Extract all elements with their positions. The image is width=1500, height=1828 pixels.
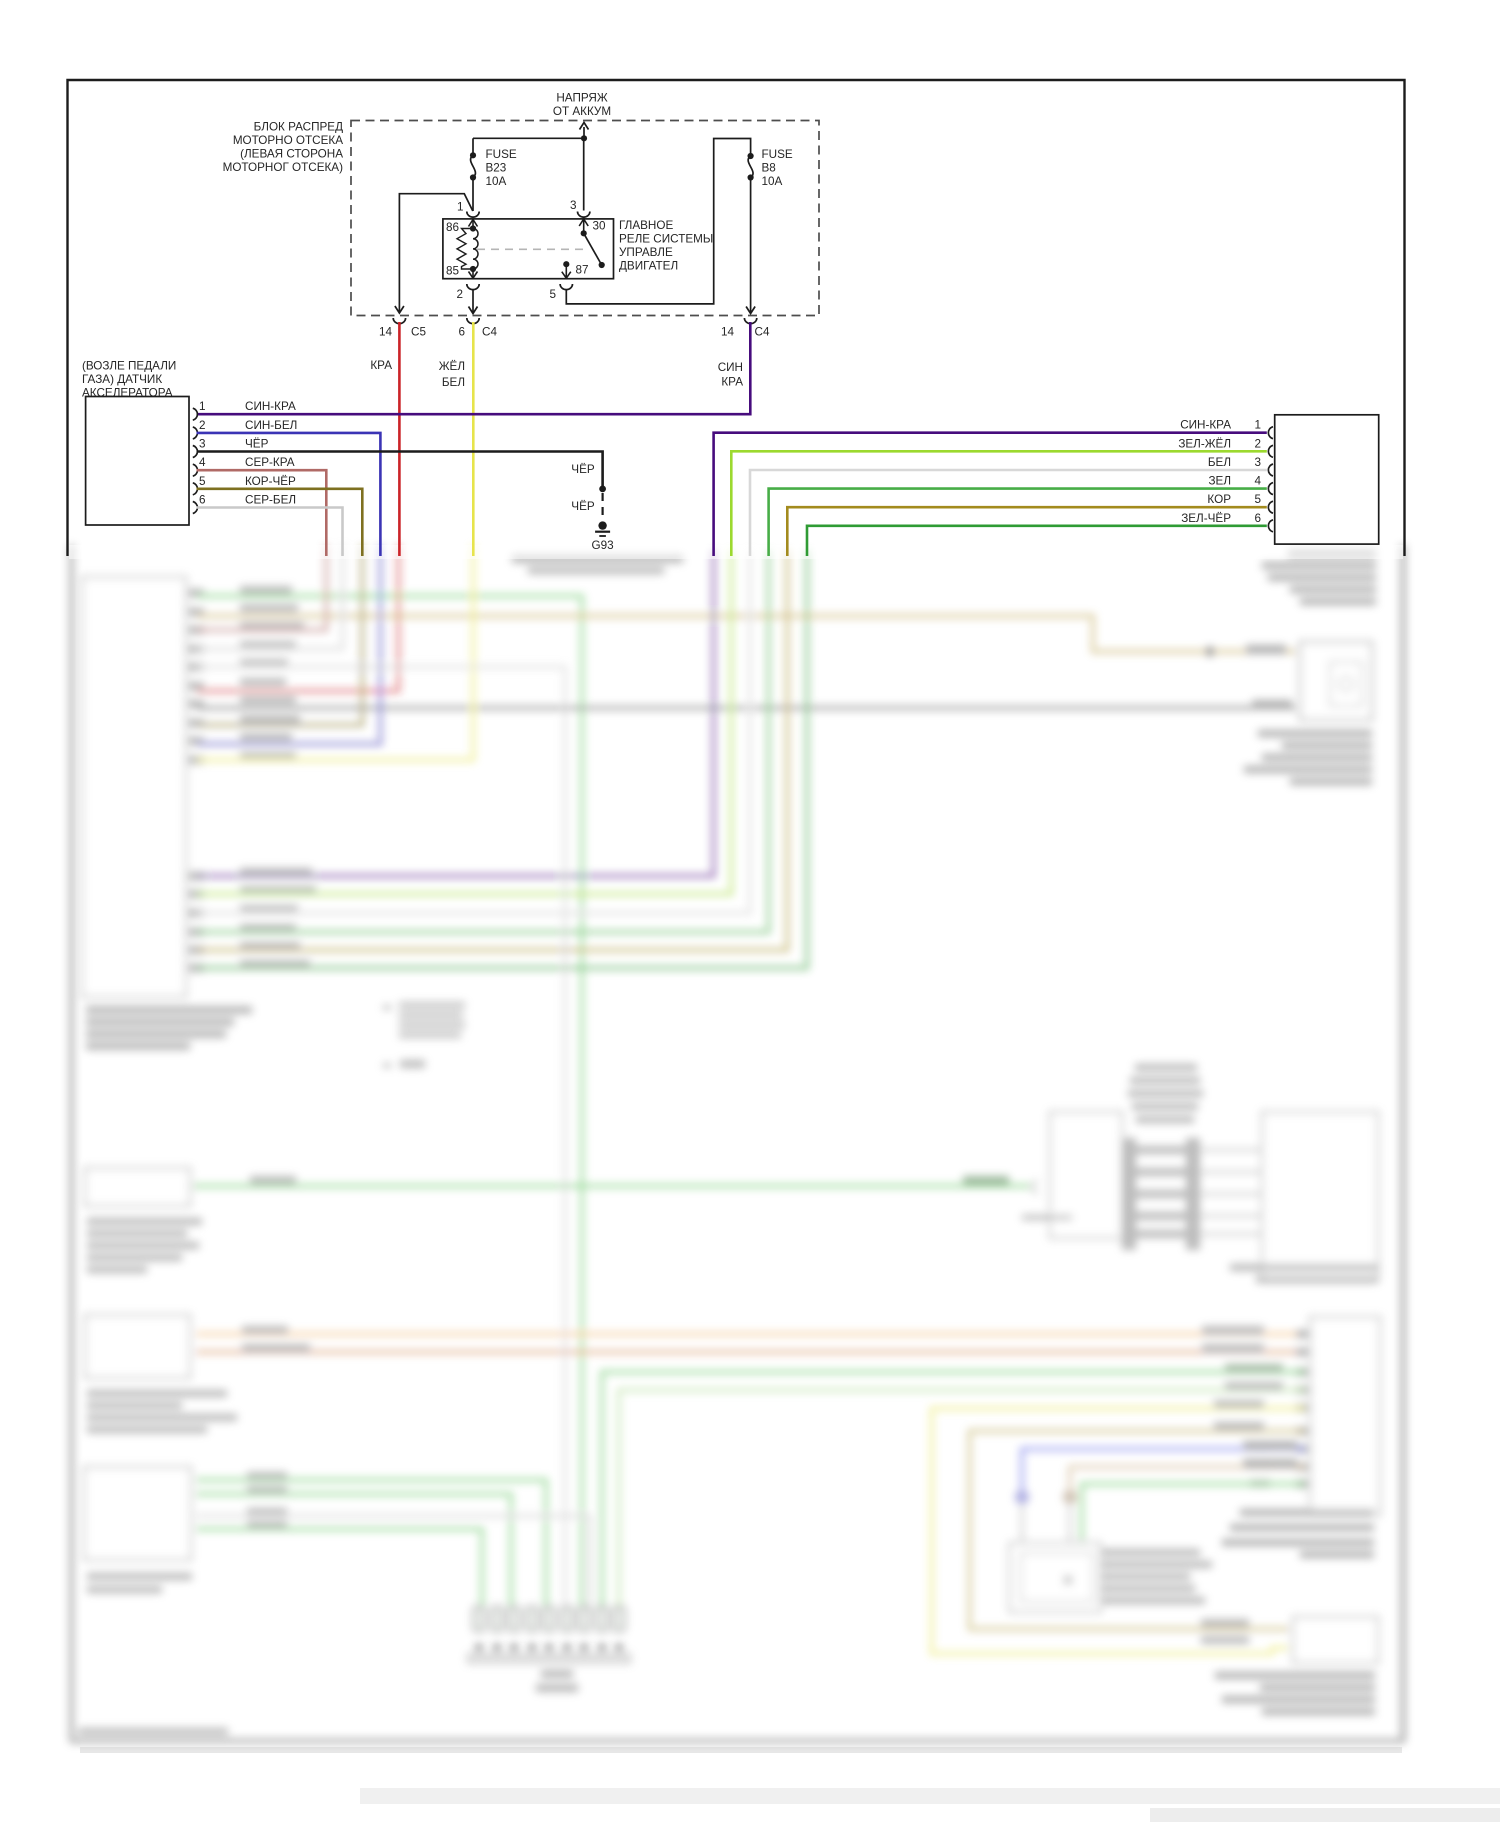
svg-text:РЕЛЕ СИСТЕМЫ: РЕЛЕ СИСТЕМЫ	[619, 233, 713, 246]
svg-text:10A: 10A	[486, 175, 507, 188]
svg-text:6: 6	[1254, 512, 1261, 525]
svg-text:3: 3	[570, 199, 577, 212]
svg-text:2: 2	[1254, 437, 1261, 450]
svg-text:30: 30	[593, 220, 607, 233]
svg-text:2: 2	[456, 288, 463, 301]
svg-text:85: 85	[446, 265, 460, 278]
svg-text:СИН-БЕЛ: СИН-БЕЛ	[245, 419, 297, 432]
svg-text:5: 5	[1254, 493, 1261, 506]
svg-text:6: 6	[199, 494, 206, 507]
svg-text:14: 14	[379, 326, 393, 339]
svg-text:ЧЁР: ЧЁР	[571, 500, 595, 513]
svg-text:3: 3	[1254, 456, 1261, 469]
svg-text:СИН-КРА: СИН-КРА	[1180, 419, 1231, 432]
svg-text:ЧЁР: ЧЁР	[245, 438, 269, 451]
svg-text:БЛОК РАСПРЕД: БЛОК РАСПРЕД	[254, 121, 343, 134]
svg-text:КОР: КОР	[1207, 493, 1231, 506]
svg-text:ЖЁЛ: ЖЁЛ	[439, 360, 465, 373]
svg-text:10A: 10A	[762, 175, 783, 188]
svg-text:СЕР-КРА: СЕР-КРА	[245, 456, 295, 469]
svg-text:СЕР-БЕЛ: СЕР-БЕЛ	[245, 494, 296, 507]
svg-text:АКСЕЛЕРАТОРА: АКСЕЛЕРАТОРА	[82, 387, 173, 400]
svg-text:4: 4	[1254, 475, 1261, 488]
svg-text:ДВИГАТЕЛ: ДВИГАТЕЛ	[619, 260, 678, 273]
svg-text:5: 5	[549, 288, 556, 301]
svg-text:C4: C4	[482, 326, 497, 339]
svg-text:БЕЛ: БЕЛ	[1208, 456, 1231, 469]
svg-text:ГАЗА) ДАТЧИК: ГАЗА) ДАТЧИК	[82, 373, 162, 386]
svg-text:1: 1	[199, 400, 206, 413]
svg-text:СИН-КРА: СИН-КРА	[245, 400, 296, 413]
svg-text:УПРАВЛЕ: УПРАВЛЕ	[619, 246, 673, 259]
svg-text:5: 5	[199, 475, 206, 488]
svg-text:G93: G93	[592, 539, 614, 552]
svg-text:КРА: КРА	[370, 359, 392, 372]
svg-text:КОР-ЧЁР: КОР-ЧЁР	[245, 475, 296, 488]
svg-text:БЕЛ: БЕЛ	[442, 376, 465, 389]
svg-text:B8: B8	[762, 162, 776, 175]
svg-text:ОТ АККУМ: ОТ АККУМ	[553, 105, 611, 118]
svg-text:B23: B23	[486, 162, 507, 175]
svg-text:6: 6	[458, 326, 465, 339]
svg-text:(ВОЗЛЕ ПЕДАЛИ: (ВОЗЛЕ ПЕДАЛИ	[82, 360, 176, 373]
svg-text:КРА: КРА	[721, 376, 743, 389]
svg-text:3: 3	[199, 438, 206, 451]
svg-text:1: 1	[1254, 419, 1261, 432]
svg-text:ЧЁР: ЧЁР	[571, 463, 595, 476]
svg-text:СИН: СИН	[718, 361, 743, 374]
svg-text:НАПРЯЖ: НАПРЯЖ	[556, 92, 607, 105]
svg-text:FUSE: FUSE	[762, 148, 793, 161]
svg-text:14: 14	[721, 326, 735, 339]
svg-text:МОТОРНО ОТСЕКА: МОТОРНО ОТСЕКА	[233, 134, 343, 147]
svg-text:ГЛАВНОЕ: ГЛАВНОЕ	[619, 219, 673, 232]
svg-text:ЗЕЛ-ЖЁЛ: ЗЕЛ-ЖЁЛ	[1178, 437, 1231, 450]
svg-text:FUSE: FUSE	[486, 148, 517, 161]
svg-text:ЗЕЛ-ЧЁР: ЗЕЛ-ЧЁР	[1181, 512, 1231, 525]
svg-text:(ЛЕВАЯ СТОРОНА: (ЛЕВАЯ СТОРОНА	[240, 148, 343, 161]
svg-text:C5: C5	[411, 326, 426, 339]
svg-text:87: 87	[576, 264, 589, 277]
svg-text:4: 4	[199, 456, 206, 469]
svg-text:1: 1	[457, 201, 464, 214]
svg-text:86: 86	[446, 221, 459, 234]
svg-text:МОТОРНОГ ОТСЕКА): МОТОРНОГ ОТСЕКА)	[223, 161, 344, 174]
svg-text:ЗЕЛ: ЗЕЛ	[1208, 475, 1231, 488]
svg-text:2: 2	[199, 419, 206, 432]
svg-text:C4: C4	[755, 326, 770, 339]
